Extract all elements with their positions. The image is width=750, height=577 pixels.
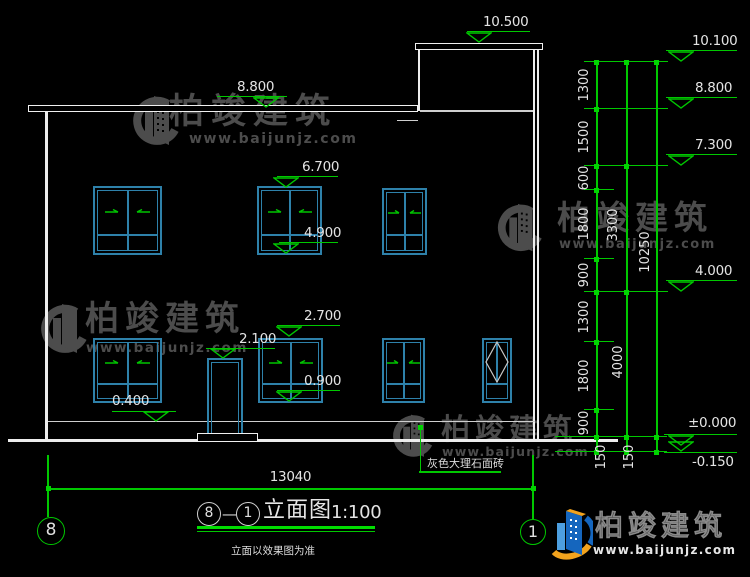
sash-arrow-left-icon (297, 208, 313, 215)
dim-line-bottom (48, 488, 533, 490)
title-bubble-label: 1 (244, 505, 253, 521)
sash-arrow-left-icon (298, 359, 314, 366)
dim-tick (555, 436, 667, 437)
drawing-title: 立面图 (263, 500, 332, 522)
sash-arrow-right-icon (267, 208, 283, 215)
elevation-value: 8.800 (237, 81, 274, 95)
watermark-logo-icon (36, 300, 88, 360)
leader-line-vertical (420, 427, 422, 472)
watermark-logo-icon (388, 412, 434, 462)
elevation-value: 6.700 (302, 161, 339, 175)
right-wall-outer (533, 50, 535, 440)
elevation-value: -0.150 (692, 456, 734, 470)
sash-arrow-right-icon (104, 208, 120, 215)
elevation-value: 2.100 (239, 333, 276, 347)
axis-bubble-label: 1 (528, 522, 538, 541)
dim-value: 1300 (577, 292, 593, 342)
watermark-url: www.baijunjz.com (189, 132, 358, 146)
sash-arrow-left-icon (408, 209, 422, 216)
watermark-name: 柏竣建筑 (85, 302, 245, 336)
elevation-triangle-icon (253, 97, 279, 108)
elevation-triangle-icon (273, 243, 299, 254)
elevation-triangle-icon (668, 51, 694, 62)
entry-door (207, 358, 243, 440)
dim-value: 600 (577, 153, 593, 203)
axis-bubble-right: 1 (520, 519, 546, 545)
sill-band-line (48, 421, 535, 422)
leader-underline (419, 471, 501, 473)
stair-tower-cap (415, 43, 543, 50)
dim-tick (555, 451, 667, 452)
elevation-value: 10.500 (483, 16, 528, 30)
brand-url: www.baijunjz.com (593, 544, 736, 556)
window-diamond (482, 338, 512, 403)
dim-value: 4000 (611, 337, 627, 387)
brand-logo-icon (546, 507, 593, 562)
dim-value: 10250 (638, 227, 654, 277)
material-note-text: 灰色大理石面砖 (427, 458, 504, 469)
sash-arrow-right-icon (386, 359, 400, 366)
elevation-value: ±0.000 (688, 417, 736, 431)
elevation-value: 8.800 (695, 82, 732, 96)
dim-value: 1800 (577, 199, 593, 249)
drawing-scale: 1:100 (331, 504, 381, 522)
elevation-triangle-icon (668, 98, 694, 109)
elevation-value: 4.000 (695, 265, 732, 279)
diamond-pane-icon (484, 340, 510, 384)
parapet-step-line (397, 120, 418, 121)
elevation-triangle-icon (668, 155, 694, 166)
right-wall-inner (537, 50, 539, 440)
sash-arrow-right-icon (268, 359, 284, 366)
elevation-triangle-icon (276, 326, 302, 337)
dim-value: 1300 (577, 60, 593, 110)
brand-name: 柏竣建筑 (595, 512, 727, 540)
door-step-plinth (197, 433, 258, 442)
elevation-value: 2.700 (304, 310, 341, 324)
window-mullion-horizontal (97, 234, 158, 236)
elevation-triangle-icon (668, 441, 694, 452)
left-wall (45, 112, 48, 441)
axis-bubble-left: 8 (37, 517, 65, 545)
elevation-value: 10.100 (692, 35, 737, 49)
door-inner-frame (211, 362, 239, 436)
title-note: 立面以效果图为准 (231, 546, 315, 557)
elevation-drawing-canvas: 柏竣建筑 www.baijunjz.com 柏竣建筑 www.baijunjz.… (0, 0, 750, 577)
window-mullion-horizontal (386, 383, 421, 385)
title-underline-thick (197, 526, 375, 529)
window-mullion-horizontal (386, 234, 423, 236)
parapet-cap (28, 105, 418, 112)
elevation-triangle-icon (143, 411, 169, 422)
sash-arrow-right-icon (104, 359, 120, 366)
elevation-triangle-icon (276, 391, 302, 402)
dim-value: 150 (622, 432, 638, 482)
dim-line-group (626, 62, 628, 452)
sash-arrow-left-icon (135, 359, 151, 366)
title-bubble-right: 1 (236, 502, 260, 526)
window-mullion-vertical (127, 190, 129, 251)
elevation-value: 4.900 (304, 227, 341, 241)
sash-arrow-right-icon (387, 209, 401, 216)
title-dash: — (222, 507, 237, 522)
axis-bubble-label: 8 (46, 520, 57, 540)
title-bubble-left: 8 (197, 502, 221, 526)
dim-value: 1800 (577, 351, 593, 401)
roof-slab-line (420, 110, 534, 112)
elevation-triangle-icon (668, 281, 694, 292)
sash-arrow-left-icon (135, 208, 151, 215)
window-upper-left (93, 186, 162, 255)
window-mullion-horizontal (97, 383, 158, 385)
sash-arrow-left-icon (407, 359, 421, 366)
elevation-value: 0.900 (304, 375, 341, 389)
title-underline-thin (197, 531, 375, 532)
window-mullion-vertical (404, 192, 406, 251)
dim-value: 150 (594, 432, 610, 482)
elevation-value: 0.400 (112, 395, 149, 409)
window-upper-right (382, 188, 427, 255)
dim-line-total (656, 62, 658, 452)
window-mullion-vertical (403, 342, 405, 399)
dim-value: 900 (577, 398, 593, 448)
window-mullion-vertical (127, 342, 129, 399)
elevation-triangle-icon (210, 348, 236, 359)
window-lower-right (382, 338, 425, 403)
dim-value: 3300 (606, 200, 622, 250)
stair-tower-left-wall (418, 50, 420, 111)
elevation-value: 7.300 (695, 139, 732, 153)
elevation-triangle-icon (466, 32, 492, 43)
dim-value-bottom: 13040 (268, 471, 313, 485)
title-bubble-label: 8 (205, 505, 214, 521)
elevation-triangle-icon (273, 177, 299, 188)
ground-line (8, 439, 618, 442)
